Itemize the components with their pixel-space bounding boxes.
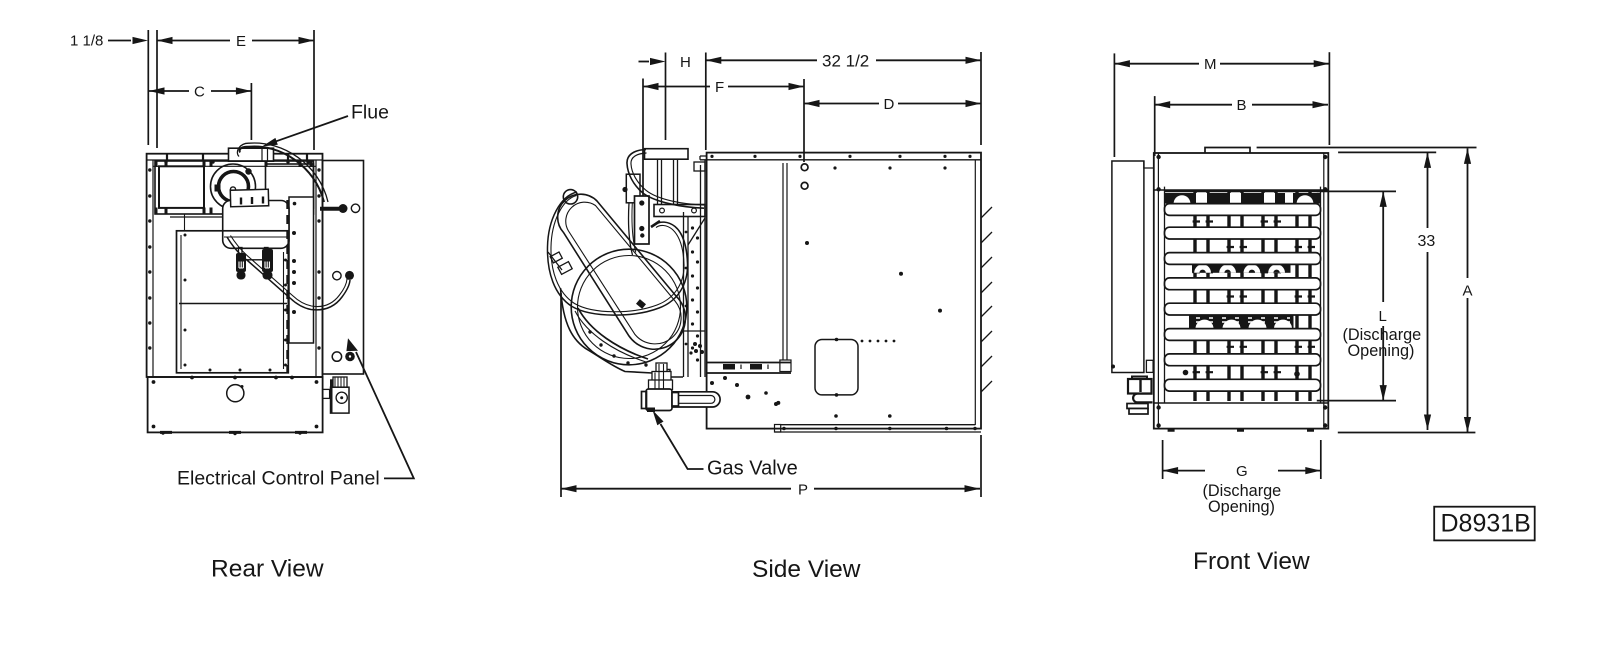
svg-text:32 1/2: 32 1/2 [822, 52, 869, 71]
svg-text:Front View: Front View [1193, 548, 1310, 575]
svg-text:Flue: Flue [351, 102, 389, 124]
svg-text:L: L [1379, 308, 1387, 325]
svg-text:Rear View: Rear View [211, 556, 324, 583]
svg-text:B: B [1237, 97, 1247, 114]
svg-text:E: E [236, 33, 246, 50]
svg-text:A: A [1463, 283, 1473, 300]
svg-text:33: 33 [1418, 233, 1436, 250]
svg-text:G: G [1236, 463, 1248, 480]
svg-text:Electrical Control Panel: Electrical Control Panel [177, 468, 380, 490]
svg-text:M: M [1204, 56, 1217, 73]
svg-text:Gas Valve: Gas Valve [707, 458, 798, 480]
svg-text:1 1/8: 1 1/8 [70, 33, 103, 50]
svg-text:Opening): Opening) [1348, 342, 1415, 360]
svg-text:H: H [680, 54, 691, 71]
svg-text:F: F [715, 79, 724, 96]
svg-text:D: D [884, 96, 895, 113]
svg-text:Side View: Side View [752, 556, 861, 583]
svg-text:P: P [798, 482, 808, 499]
svg-text:D8931B: D8931B [1441, 510, 1531, 538]
svg-text:Opening): Opening) [1208, 498, 1275, 516]
svg-text:C: C [194, 84, 205, 101]
